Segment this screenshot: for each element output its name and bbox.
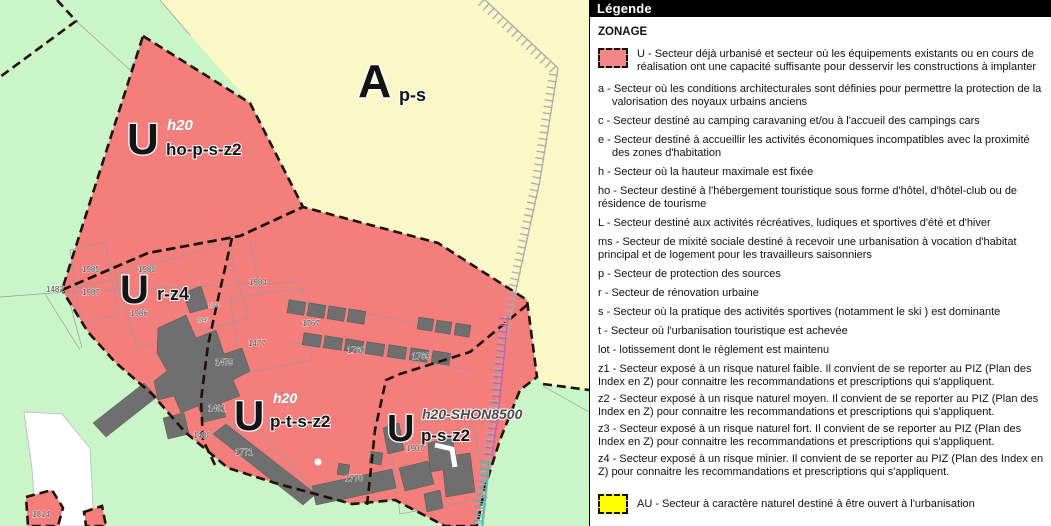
zone-label: r-z4 — [157, 284, 189, 304]
zoning-map-viewer: Ap-sUh20ho-p-s-z2Ur-z4Uh20p-t-s-z2Uh20-S… — [0, 0, 1051, 526]
legend-item: t - Secteur où l'urbanisation touristiqu… — [598, 325, 1045, 338]
u-zone-description: U - Secteur déjà urbanisé et secteur où … — [637, 48, 1045, 74]
zone-label: h20 — [167, 117, 194, 134]
parcel-number: 1848 — [208, 303, 220, 309]
zone-label: ho-p-s-z2 — [166, 140, 242, 159]
zone-label: U — [120, 268, 149, 312]
legend-item: a - Secteur où les conditions architectu… — [598, 83, 1045, 109]
white-dot — [315, 459, 322, 466]
map-pane[interactable]: Ap-sUh20ho-p-s-z2Ur-z4Uh20p-t-s-z2Uh20-S… — [0, 0, 590, 526]
legend-item: ms - Secteur de mixité sociale destiné à… — [598, 236, 1045, 262]
legend-item: s - Secteur où la pratique des activités… — [598, 306, 1045, 319]
legend-item: ho - Secteur destiné à l'hébergement tou… — [598, 185, 1045, 211]
parcel-number: 1481 — [208, 404, 226, 413]
legend-item: z3 - Secteur exposé à un risque naturel … — [598, 423, 1045, 449]
zone-label: h20 — [273, 390, 297, 406]
legend-entry-u: U - Secteur déjà urbanisé et secteur où … — [598, 48, 1045, 74]
parcel-number: 1769 — [412, 352, 430, 361]
parcel-number: 1770 — [345, 474, 363, 483]
zone-label: p-t-s-z2 — [270, 412, 330, 431]
parcel-number: 1477 — [248, 339, 266, 348]
legend-item: e - Secteur destiné à accueillir les act… — [598, 134, 1045, 160]
legend-item: z4 - Secteur exposé à un risque minier. … — [598, 453, 1045, 479]
u-zone-swatch — [598, 48, 628, 68]
parcel-number: 1768 — [347, 346, 365, 355]
parcel-number: 1980 — [138, 265, 156, 274]
parcel-number: 1480 — [193, 431, 211, 440]
legend-entry-au: AU - Secteur à caractère naturel destiné… — [598, 494, 1045, 514]
parcel-number: 1771 — [235, 448, 253, 457]
zone-label: h20-SHON8500 — [422, 406, 523, 422]
parcel-number: 1984 — [249, 278, 267, 287]
parcel-number: 1986 — [130, 309, 148, 318]
legend-item: r - Secteur de rénovation urbaine — [598, 287, 1045, 300]
parcel-number: 1849 — [197, 318, 209, 324]
zonage-item-list: a - Secteur où les conditions architectu… — [598, 83, 1045, 479]
zone-label: U — [127, 115, 159, 164]
zone-label: p-s-z2 — [421, 426, 470, 445]
parcel-number: 1987 — [82, 288, 100, 297]
legend-section-zonage: ZONAGE — [598, 26, 1045, 39]
au-zone-description: AU - Secteur à caractère naturel destiné… — [637, 498, 1045, 511]
legend-panel: Légende ZONAGE U - Secteur déjà urbanisé… — [590, 0, 1051, 526]
zone-label: A — [358, 55, 391, 107]
legend-body[interactable]: ZONAGE U - Secteur déjà urbanisé et sect… — [590, 17, 1051, 526]
parcel-number: 1907 — [406, 444, 424, 453]
zoning-map[interactable]: Ap-sUh20ho-p-s-z2Ur-z4Uh20p-t-s-z2Uh20-S… — [0, 0, 589, 526]
legend-item: L - Secteur destiné aux activités récréa… — [598, 217, 1045, 230]
parcel-number: 1814 — [32, 510, 50, 519]
parcel-number: 1985 — [82, 265, 100, 274]
parcel-number: 1479 — [215, 358, 233, 367]
legend-item: c - Secteur destiné au camping caravanin… — [598, 115, 1045, 128]
au-zone-swatch — [598, 494, 628, 514]
legend-item: p - Secteur de protection des sources — [598, 268, 1045, 281]
legend-item: lot - lotissement dont le règlement est … — [598, 344, 1045, 357]
legend-item: z2 - Secteur exposé à un risque naturel … — [598, 393, 1045, 419]
legend-item: h - Secteur où la hauteur maximale est f… — [598, 166, 1045, 179]
parcel-number: 1767 — [302, 319, 320, 328]
legend-title: Légende — [590, 0, 1051, 17]
zone-label: p-s — [399, 85, 426, 105]
legend-item: z1 - Secteur exposé à un risque naturel … — [598, 363, 1045, 389]
zone-label: U — [234, 392, 264, 439]
parcel-number: 1482 — [46, 285, 64, 294]
